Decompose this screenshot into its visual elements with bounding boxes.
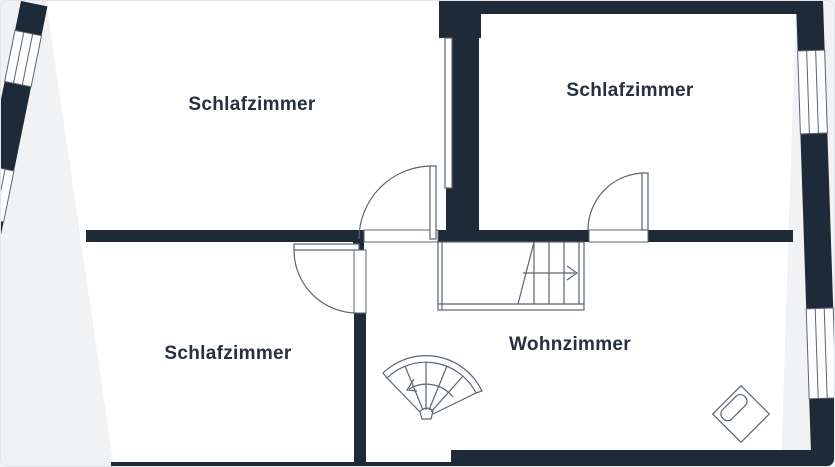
window-icon — [5, 30, 42, 86]
window-icon — [1, 166, 14, 222]
floorplan-canvas — [1, 1, 835, 467]
door-opening — [589, 230, 648, 242]
top-exterior-wall — [479, 1, 811, 14]
door-opening — [354, 250, 366, 313]
room-label-living-room: Wohnzimmer — [509, 334, 631, 356]
staircase-icon — [438, 242, 584, 310]
right-exterior-wall — [796, 1, 835, 467]
room-label-bedroom-bottom-left: Schlafzimmer — [164, 343, 291, 365]
room-label-bedroom-top-left: Schlafzimmer — [188, 94, 315, 116]
window-icon — [798, 50, 828, 134]
door-opening — [364, 230, 438, 242]
room-label-bedroom-top-right: Schlafzimmer — [566, 80, 693, 102]
left-exterior-wall — [1, 1, 47, 467]
window-icon — [806, 308, 835, 399]
floorplan-card: Schlafzimmer Schlafzimmer Schlafzimmer W… — [0, 0, 835, 467]
lower-dividing-wall — [354, 313, 366, 465]
sliding-door-leaf — [445, 38, 452, 188]
